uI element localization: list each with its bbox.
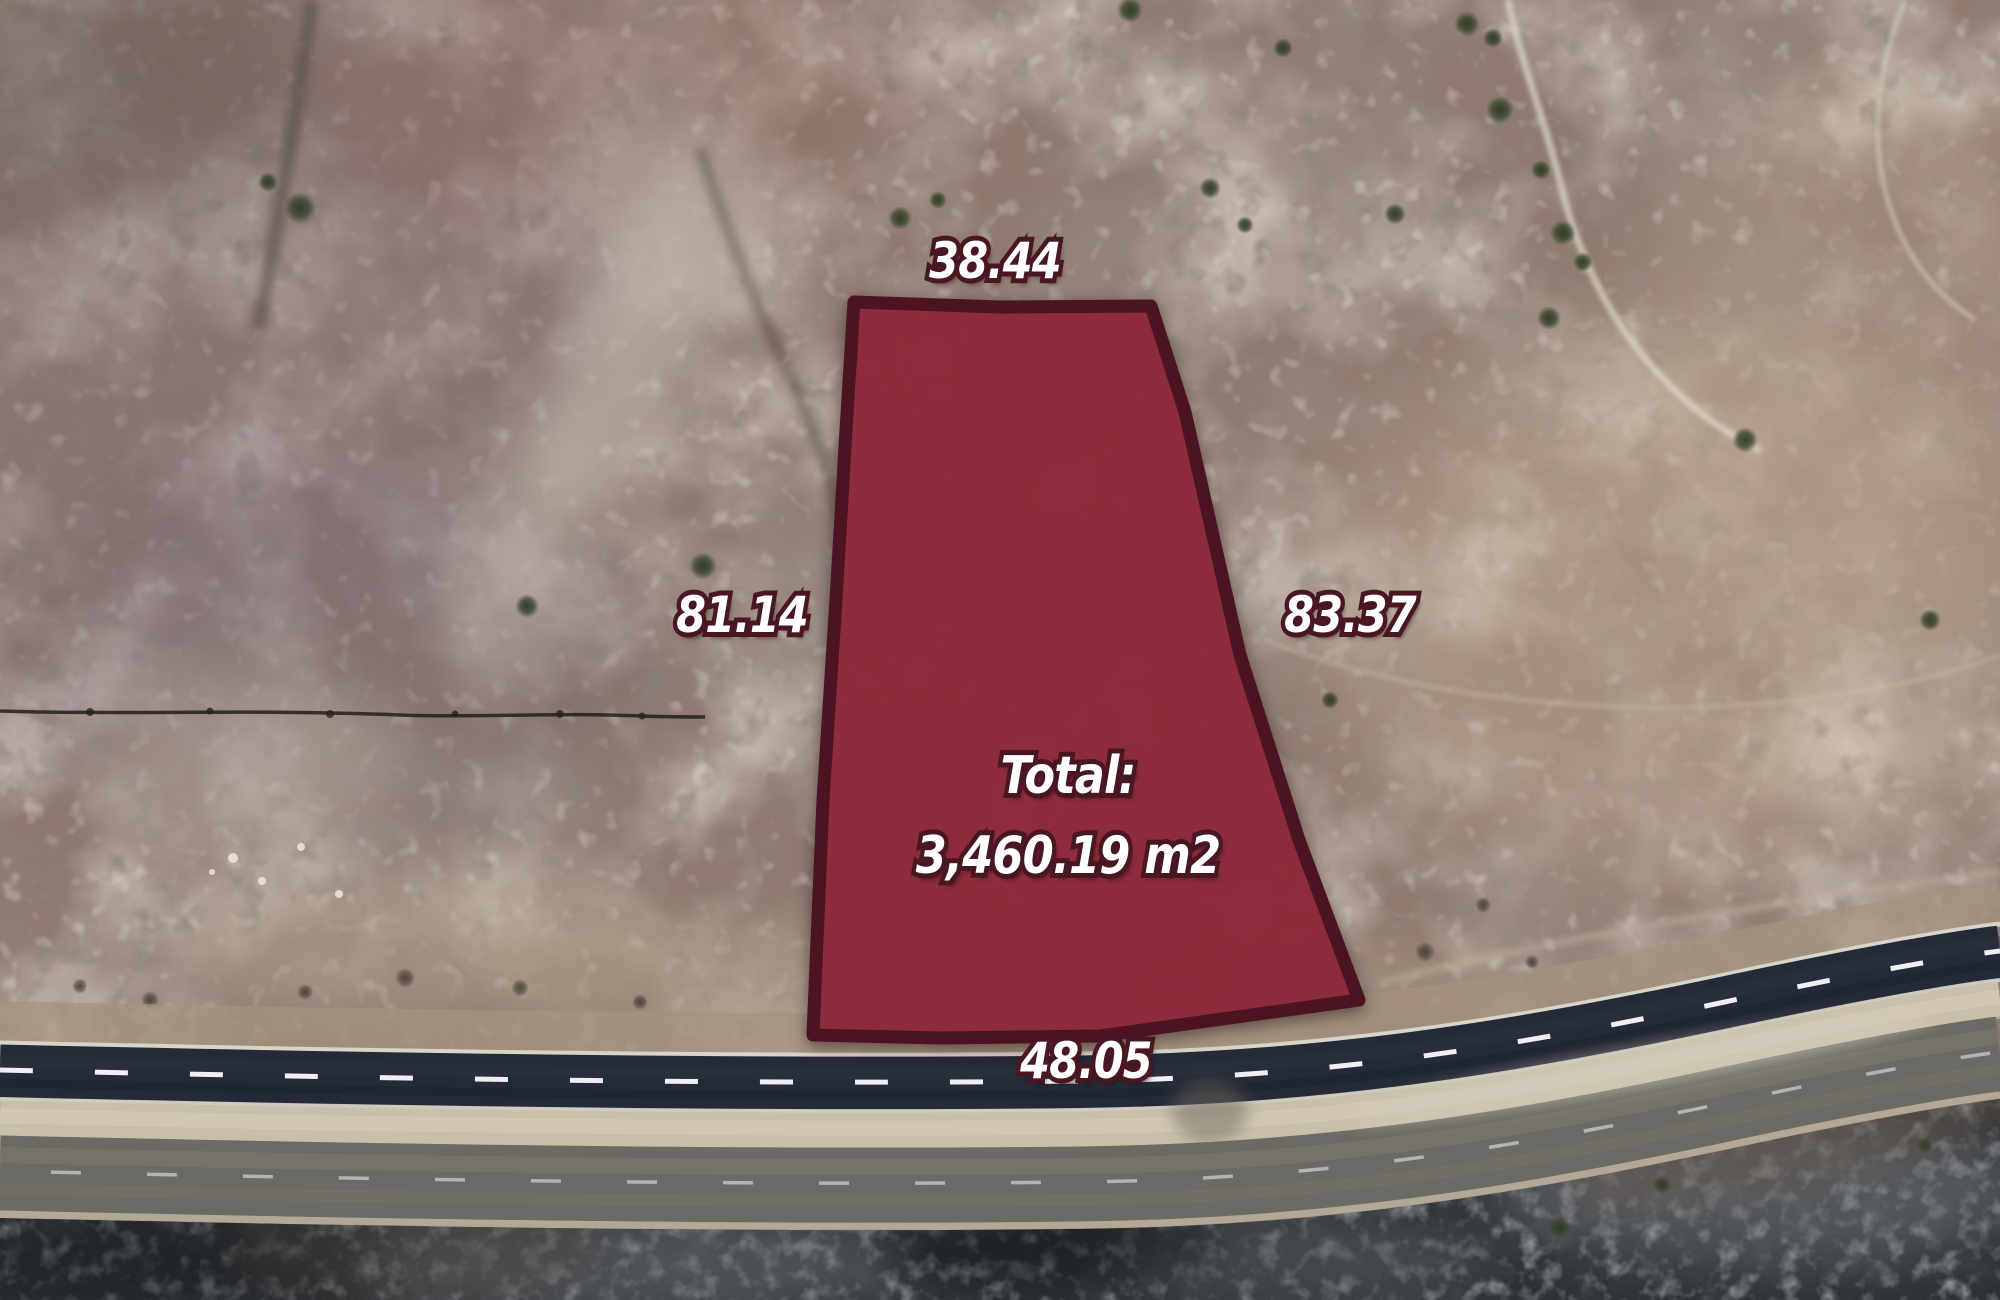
satellite-map-canvas <box>0 0 2000 1300</box>
measurement-top-value: 38.44 <box>929 232 1061 290</box>
parcel-total-area: 3,460.19 m23,460.19 m2 <box>916 830 1221 882</box>
measurement-left-value: 81.14 <box>676 586 808 644</box>
parcel-total-label-text: Total: <box>1000 746 1135 806</box>
parcel-total-label: Total:Total: <box>1000 750 1135 802</box>
measurement-bottom-value: 48.05 <box>1020 1032 1152 1090</box>
satellite-map-view: 38.4438.44 81.1481.14 83.3783.37 Total:T… <box>0 0 2000 1300</box>
measurement-bottom: 48.0548.05 <box>1020 1036 1152 1086</box>
measurement-right-value: 83.37 <box>1284 586 1416 644</box>
measurement-left: 81.1481.14 <box>676 590 808 640</box>
measurement-top: 38.4438.44 <box>929 236 1061 286</box>
parcel-total-area-value: 3,460.19 m2 <box>916 826 1221 886</box>
measurement-right: 83.3783.37 <box>1284 590 1416 640</box>
